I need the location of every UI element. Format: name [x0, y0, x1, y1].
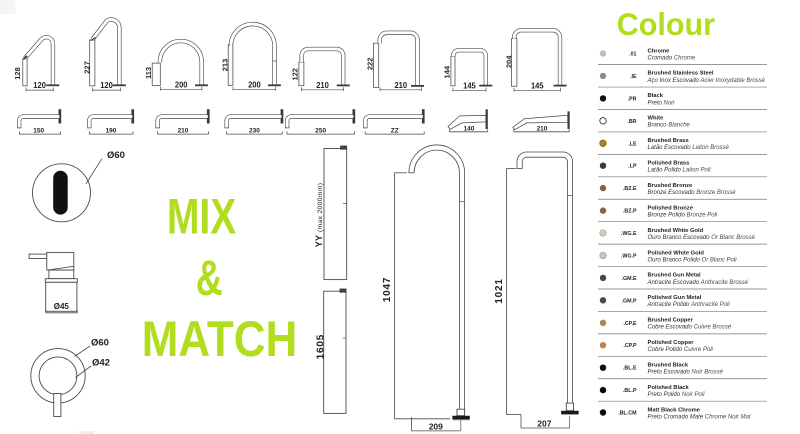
svg-text:207: 207 [537, 418, 551, 428]
svg-text:Cobre Polido Cuivre Poli: Cobre Polido Cuivre Poli [648, 347, 714, 353]
svg-text:Aço Inox Escovado Acier Inoxyd: Aço Inox Escovado Acier Inoxydable Bross… [647, 78, 766, 84]
svg-text:128: 128 [13, 67, 22, 80]
svg-text:Brushed Brass: Brushed Brass [648, 138, 689, 144]
svg-text:.BR: .BR [627, 119, 636, 125]
svg-text:Polished Copper: Polished Copper [648, 340, 695, 346]
svg-text:Cobre Escovado Cuivre Brossé: Cobre Escovado Cuivre Brossé [648, 325, 732, 331]
svg-text:Latão Escovado Laiton Brossé: Latão Escovado Laiton Brossé [648, 145, 730, 151]
svg-text:&: & [196, 249, 223, 306]
svg-text:Polished Gun Metal: Polished Gun Metal [648, 295, 702, 301]
svg-text:120: 120 [33, 80, 46, 90]
svg-text:227: 227 [82, 61, 91, 74]
svg-text:209: 209 [429, 421, 443, 431]
svg-text:Brushed Bronze: Brushed Bronze [648, 183, 694, 189]
svg-text:Ouro Branco Escovado Or Blanc: Ouro Branco Escovado Or Blanc Brossé [648, 235, 756, 241]
svg-text:Polished Brass: Polished Brass [648, 161, 690, 167]
svg-text:ZZ: ZZ [391, 127, 399, 134]
svg-text:Brushed Gun Metal: Brushed Gun Metal [648, 273, 702, 279]
svg-text:Preto Cromado Mate Chrome Noir: Preto Cromado Mate Chrome Noir Mat [648, 414, 751, 420]
svg-text:.GM.P: .GM.P [621, 298, 636, 304]
svg-text:Branco Blanche: Branco Blanche [648, 123, 691, 129]
svg-text:190: 190 [106, 127, 117, 134]
svg-text:145: 145 [531, 80, 544, 90]
svg-text:Polished Bronze: Polished Bronze [648, 205, 694, 211]
svg-text:.BL.E: .BL.E [623, 366, 637, 372]
svg-text:Cromado Chrome: Cromado Chrome [648, 55, 696, 61]
svg-text:210: 210 [394, 80, 407, 90]
svg-text:MATCH: MATCH [142, 310, 297, 367]
svg-text:Preto Escovado Noir Brossé: Preto Escovado Noir Brossé [648, 370, 724, 376]
svg-text:.BL.CM: .BL.CM [618, 411, 637, 417]
svg-text:.GM.E: .GM.E [621, 276, 636, 282]
svg-text:Black: Black [648, 93, 664, 99]
svg-text:200: 200 [248, 79, 261, 89]
svg-text:.CP.P: .CP.P [623, 343, 637, 349]
svg-text:Ø45: Ø45 [54, 302, 70, 311]
svg-text:1021: 1021 [494, 278, 505, 303]
svg-text:Brushed Copper: Brushed Copper [648, 318, 694, 324]
svg-text:1047: 1047 [382, 277, 393, 302]
svg-text:1605: 1605 [316, 334, 327, 359]
svg-text:White: White [648, 116, 665, 122]
svg-text:.BL.P: .BL.P [623, 388, 637, 394]
svg-text:Brushed White Gold: Brushed White Gold [648, 228, 704, 234]
svg-text:122: 122 [290, 68, 299, 81]
svg-text:Ø60: Ø60 [107, 150, 125, 161]
svg-text:.LE: .LE [628, 141, 637, 147]
svg-text:Preto Polido Noir Poli: Preto Polido Noir Poli [648, 392, 706, 398]
svg-text:Ø42: Ø42 [92, 358, 110, 369]
svg-text:213: 213 [221, 59, 230, 72]
svg-text:Bronze Escovado Bronze Brossé: Bronze Escovado Bronze Brossé [648, 190, 737, 196]
svg-text:Ouro Branco Polido Or Blanc Po: Ouro Branco Polido Or Blanc Poli [648, 257, 738, 263]
svg-text:Brushed Stainless Steel: Brushed Stainless Steel [648, 71, 714, 77]
svg-text:.BZ.P: .BZ.P [623, 209, 637, 215]
svg-text:Polished White Gold: Polished White Gold [648, 250, 705, 256]
svg-text:210: 210 [537, 125, 548, 132]
svg-text:.BZ.E: .BZ.E [623, 186, 637, 192]
svg-text:Latão Polido Laiton Poli: Latão Polido Laiton Poli [648, 168, 712, 174]
svg-text:200: 200 [175, 79, 188, 89]
svg-text:Chrome: Chrome [648, 48, 671, 54]
svg-text:210: 210 [178, 127, 189, 134]
svg-text:Preto Noir: Preto Noir [648, 100, 676, 106]
svg-text:.WG.P: .WG.P [621, 253, 637, 259]
svg-text:145: 145 [463, 80, 476, 90]
svg-text:Antracite Polido Anthracite Po: Antracite Polido Anthracite Poli [647, 302, 731, 308]
svg-text:.CP.E: .CP.E [623, 321, 637, 327]
svg-text:Polished Black: Polished Black [648, 385, 690, 391]
svg-text:MIX: MIX [167, 187, 236, 244]
svg-text:120: 120 [100, 80, 113, 90]
svg-text:222: 222 [365, 58, 374, 71]
svg-text:.01: .01 [629, 52, 636, 58]
svg-text:140: 140 [464, 125, 475, 132]
svg-text:Ø60: Ø60 [91, 337, 109, 348]
svg-text:.IE: .IE [630, 74, 637, 80]
svg-text:Colour: Colour [617, 6, 715, 42]
svg-text:250: 250 [315, 127, 326, 134]
svg-text:204: 204 [504, 55, 513, 68]
svg-text:Bronze Polido Bronze Poli: Bronze Polido Bronze Poli [648, 213, 718, 219]
svg-text:Matt Black Chrome: Matt Black Chrome [648, 407, 701, 413]
svg-text:230: 230 [249, 127, 260, 134]
svg-text:113: 113 [144, 67, 153, 79]
svg-text:210: 210 [316, 80, 329, 90]
svg-text:150: 150 [33, 127, 44, 134]
svg-text:Antracite Escovado Anthracite: Antracite Escovado Anthracite Brossé [647, 280, 749, 286]
svg-text:.LP: .LP [628, 164, 637, 170]
svg-text:.WG.E: .WG.E [621, 231, 637, 237]
svg-text:Brushed Black: Brushed Black [648, 362, 689, 368]
svg-text:.PR: .PR [628, 96, 637, 102]
svg-text:144: 144 [442, 65, 451, 78]
